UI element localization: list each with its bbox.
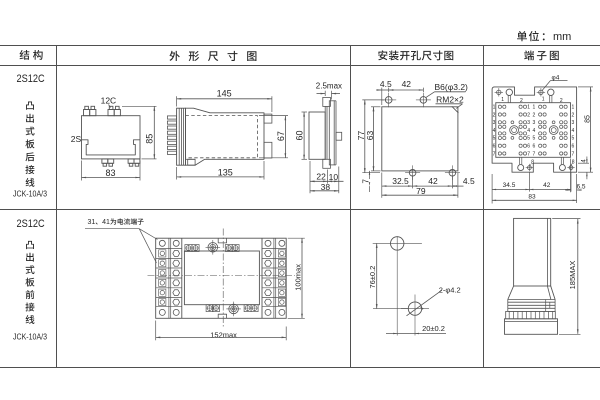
- svg-text:34.5: 34.5: [503, 182, 516, 189]
- svg-text:5: 5: [527, 136, 530, 142]
- svg-text:32.5: 32.5: [392, 176, 409, 186]
- svg-text:8: 8: [572, 159, 575, 165]
- svg-text:2S: 2S: [71, 134, 82, 144]
- svg-text:5: 5: [533, 136, 536, 142]
- svg-text:4: 4: [533, 128, 536, 134]
- svg-text:145: 145: [217, 89, 232, 99]
- svg-text:4: 4: [527, 128, 530, 134]
- svg-text:JCK-10A/3: JCK-10A/3: [13, 190, 47, 199]
- svg-text:5: 5: [572, 136, 575, 142]
- svg-text:67: 67: [276, 131, 286, 141]
- svg-text:76±0.2: 76±0.2: [368, 266, 377, 289]
- svg-text:135: 135: [218, 168, 233, 178]
- svg-text:22: 22: [316, 172, 326, 182]
- svg-text:20±0.2: 20±0.2: [422, 324, 445, 333]
- svg-text:1: 1: [542, 97, 545, 103]
- svg-text:83: 83: [528, 194, 536, 201]
- svg-text:6: 6: [493, 144, 496, 150]
- svg-text:100max: 100max: [293, 264, 302, 291]
- svg-text:7: 7: [362, 179, 371, 184]
- svg-text:42: 42: [543, 182, 551, 189]
- svg-text:4: 4: [493, 128, 496, 134]
- svg-text:3: 3: [572, 120, 575, 126]
- svg-text:2: 2: [572, 112, 575, 118]
- svg-text:3: 3: [527, 120, 530, 126]
- svg-text:6: 6: [572, 144, 575, 150]
- svg-text:1: 1: [493, 105, 496, 111]
- svg-text:7: 7: [572, 151, 575, 157]
- svg-text:2: 2: [493, 112, 496, 118]
- svg-text:1: 1: [501, 97, 504, 103]
- svg-text:6.5: 6.5: [577, 183, 586, 190]
- svg-text:JCK-10A/3: JCK-10A/3: [13, 333, 47, 342]
- svg-text:60: 60: [294, 130, 304, 140]
- svg-text:83: 83: [105, 168, 115, 178]
- svg-text:31: 31: [88, 219, 96, 226]
- svg-text:41: 41: [102, 219, 110, 226]
- svg-text:2S12C: 2S12C: [17, 218, 45, 230]
- svg-text:4.5: 4.5: [380, 79, 392, 89]
- svg-text:6: 6: [533, 144, 536, 150]
- svg-text:2.5max: 2.5max: [316, 82, 342, 91]
- svg-text:2: 2: [527, 112, 530, 118]
- svg-text:38: 38: [321, 182, 331, 192]
- svg-text:4: 4: [572, 128, 575, 134]
- svg-text:10: 10: [329, 172, 339, 182]
- svg-text:7: 7: [493, 151, 496, 157]
- svg-text:2S12C: 2S12C: [17, 73, 45, 85]
- svg-text:7: 7: [527, 151, 530, 157]
- svg-text:5: 5: [493, 136, 496, 142]
- svg-text:φ4: φ4: [552, 74, 560, 81]
- svg-text:12C: 12C: [101, 95, 117, 105]
- svg-text:3: 3: [493, 120, 496, 126]
- svg-text:7: 7: [533, 151, 536, 157]
- svg-text:3: 3: [533, 120, 536, 126]
- svg-text:1: 1: [527, 105, 530, 111]
- svg-text:1: 1: [572, 105, 575, 111]
- svg-text:mm: mm: [553, 31, 571, 43]
- svg-text:B6(φ3.2): B6(φ3.2): [435, 82, 469, 92]
- svg-text:152max: 152max: [210, 331, 237, 340]
- svg-text:63: 63: [365, 131, 375, 141]
- svg-text:42: 42: [428, 176, 438, 186]
- svg-text:RM2×2: RM2×2: [436, 94, 464, 104]
- svg-text:2-φ4.2: 2-φ4.2: [439, 285, 461, 294]
- svg-text:1: 1: [533, 105, 536, 111]
- svg-text:42: 42: [402, 79, 412, 89]
- svg-text:85: 85: [584, 115, 591, 123]
- svg-text:8: 8: [531, 159, 534, 165]
- svg-text:79: 79: [416, 186, 426, 196]
- svg-text:85: 85: [145, 134, 155, 144]
- svg-text:4.5: 4.5: [463, 176, 475, 186]
- svg-text:6: 6: [527, 144, 530, 150]
- svg-text:185MAX: 185MAX: [568, 261, 577, 290]
- svg-text:2: 2: [533, 112, 536, 118]
